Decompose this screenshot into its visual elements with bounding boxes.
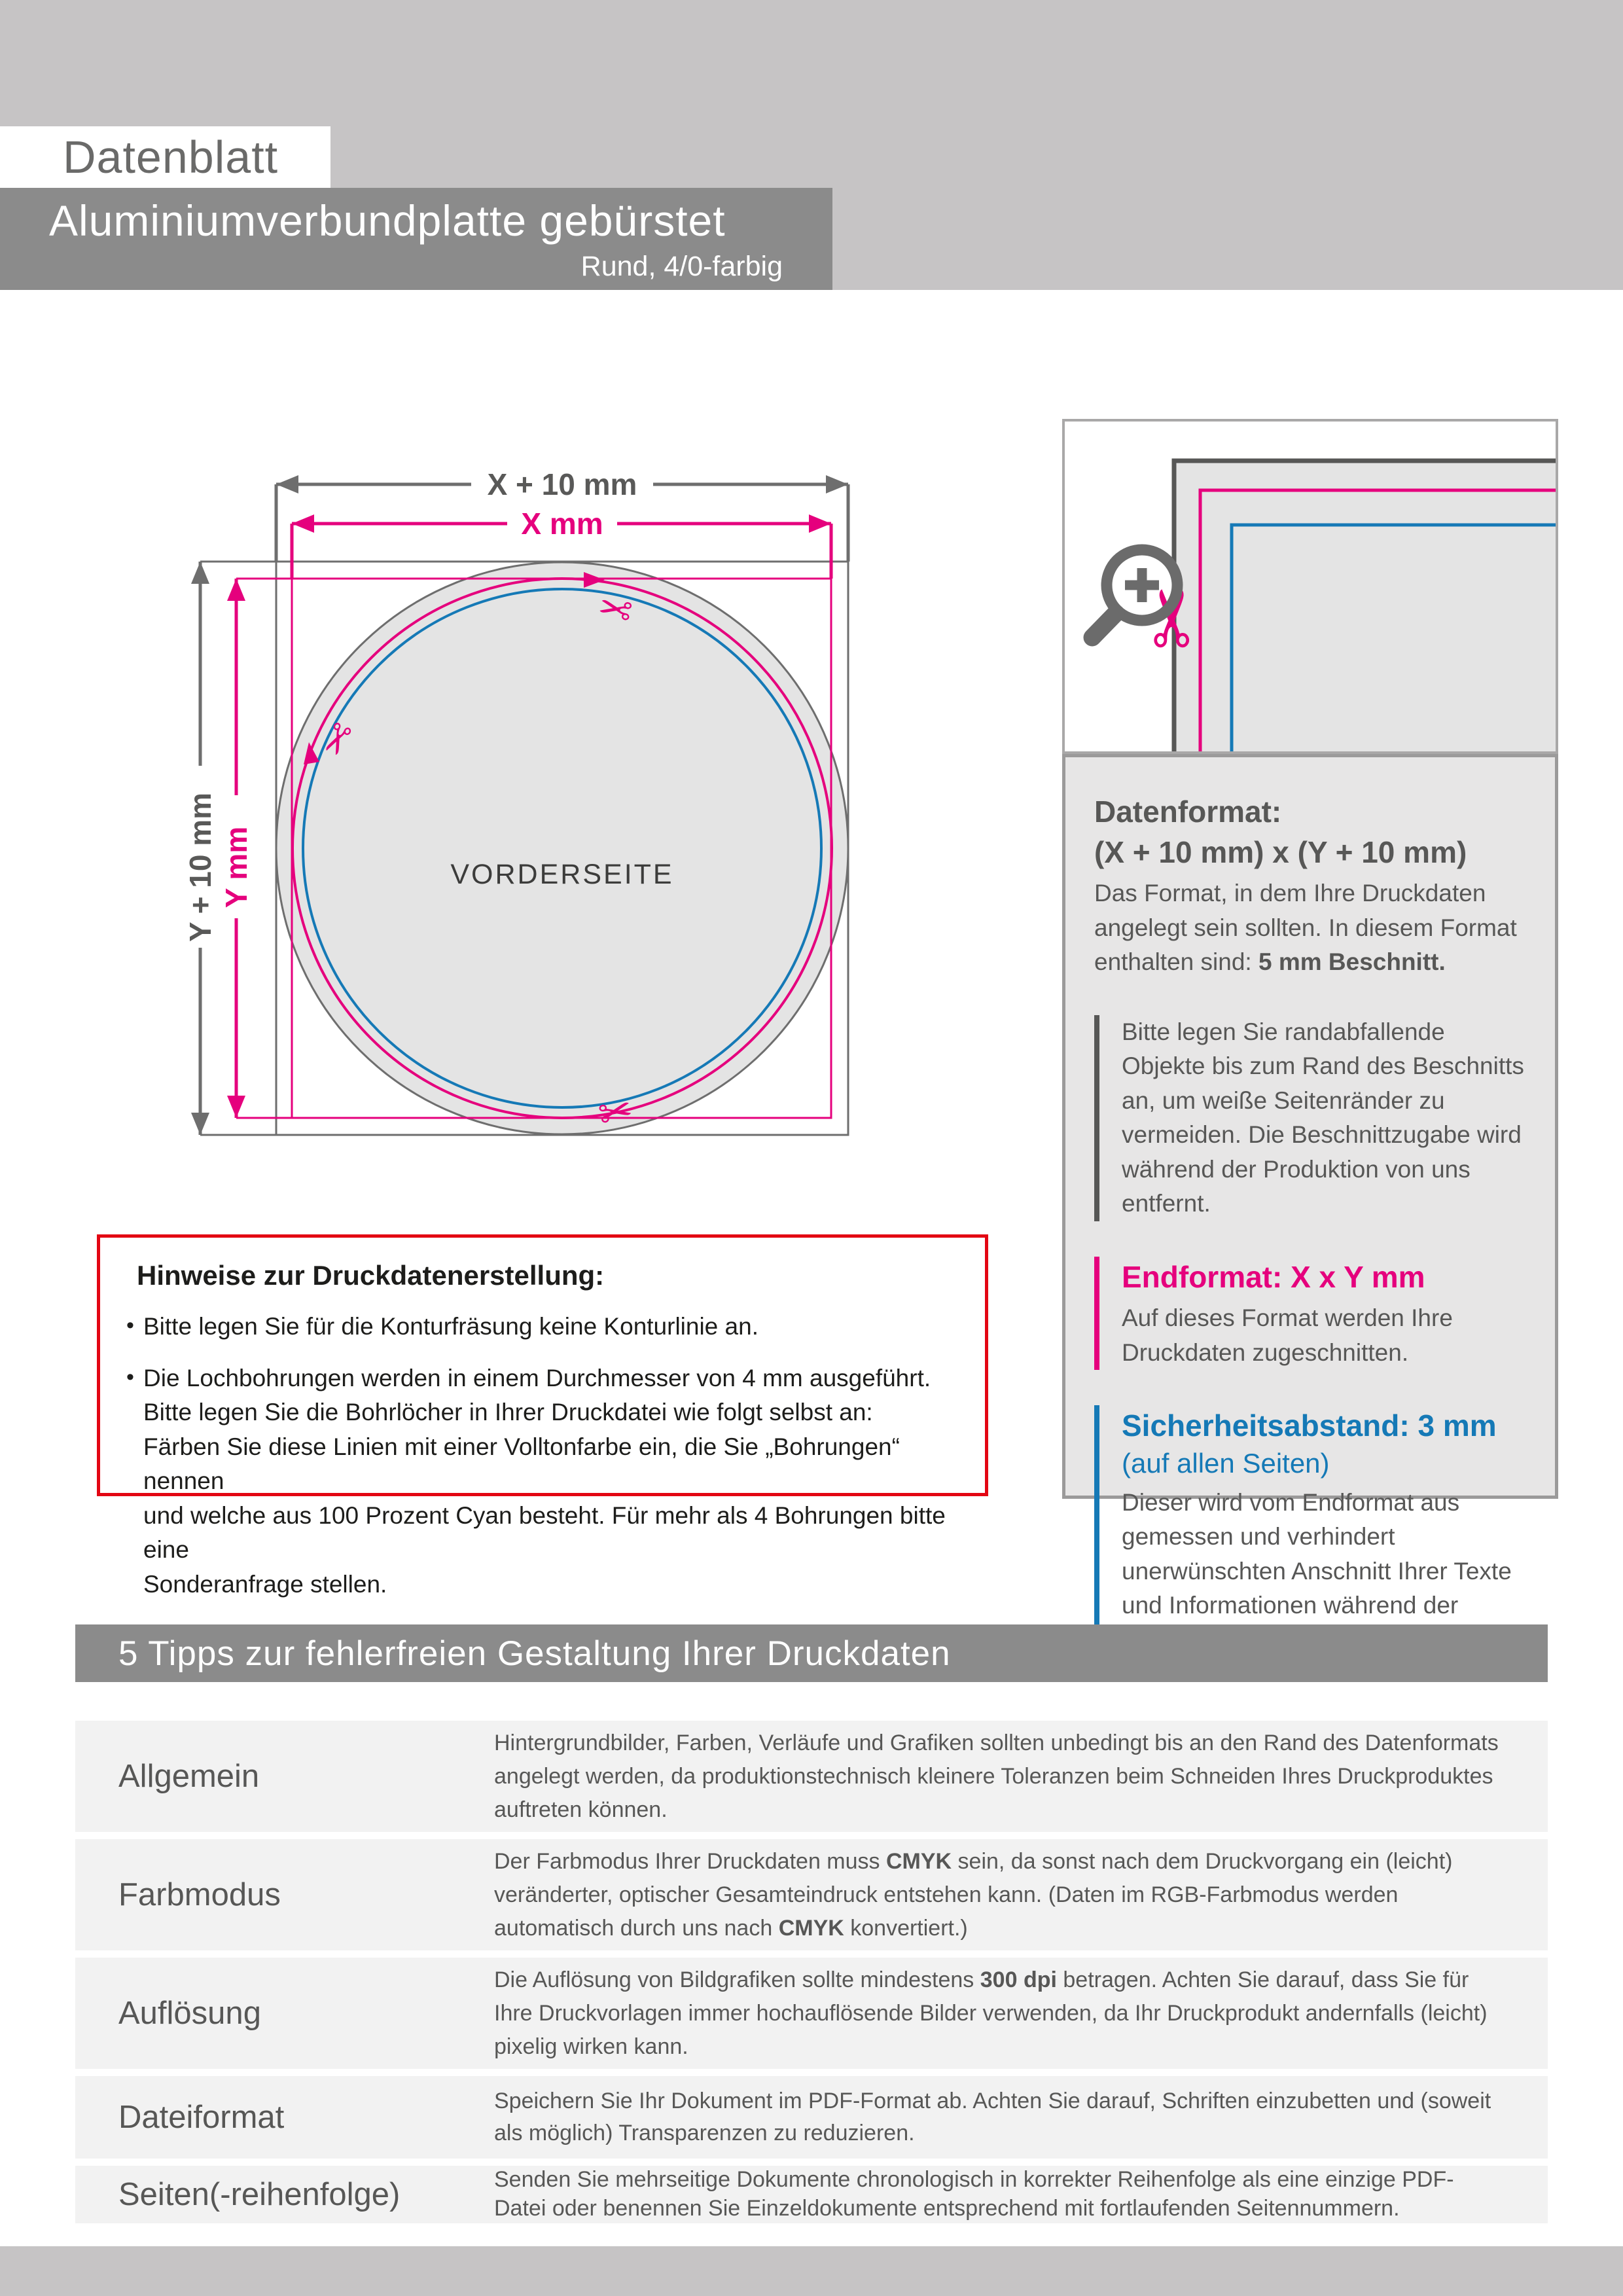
tip-text: Speichern Sie Ihr Dokument im PDF-Format… [494, 2089, 1491, 2145]
tip-description: Die Auflösung von Bildgrafiken sollte mi… [494, 1964, 1548, 2064]
datasheet-page: Datenblatt Aluminiumverbundplatte gebürs… [0, 0, 1623, 2296]
corner-zoom-detail-box: ✂ [1062, 419, 1558, 754]
dim-y-inner-label: Y mm [219, 827, 253, 908]
corner-zoom-illustration: ✂ [1065, 422, 1556, 751]
tip-text: Hintergrundbilder, Farben, Verläufe und … [494, 1731, 1499, 1822]
notes-title: Hinweise zur Druckdatenerstellung: [137, 1260, 985, 1291]
arrow-right-icon [809, 514, 831, 533]
arrow-left-icon [292, 514, 314, 533]
datenblatt-label-box: Datenblatt [0, 126, 330, 188]
tip-row-dateiformat: Dateiformat Speichern Sie Ihr Dokument i… [75, 2076, 1548, 2159]
product-subtitle: Rund, 4/0-farbig [581, 251, 783, 283]
tip-row-allgemein: Allgemein Hintergrundbilder, Farben, Ver… [75, 1721, 1548, 1832]
tip-text: Senden Sie mehrseitige Dokumente chronol… [494, 2167, 1454, 2221]
tip-label: Allgemein [75, 1758, 494, 1795]
product-title: Aluminiumverbundplatte gebürstet [49, 196, 726, 245]
tip-description: Der Farbmodus Ihrer Druckdaten muss CMYK… [494, 1845, 1548, 1945]
tip-bold-text: 300 dpi [980, 1967, 1057, 1992]
tip-row-seitenreihenfolge: Seiten(-reihenfolge) Senden Sie mehrseit… [75, 2166, 1548, 2223]
notes-bullet: Bitte legen Sie für die Konturfräsung ke… [126, 1310, 985, 1344]
tip-description: Speichern Sie Ihr Dokument im PDF-Format… [494, 2085, 1548, 2150]
dataformat-section: Datenformat: (X + 10 mm) x (Y + 10 mm) D… [1094, 791, 1529, 980]
tip-row-aufloesung: Auflösung Die Auflösung von Bildgrafiken… [75, 1958, 1548, 2069]
arrow-up-icon [191, 562, 209, 584]
format-diagram: X + 10 mm X mm Y + 10 mm Y mm ✂ ✂ ✂ VORD… [157, 452, 890, 1185]
dim-x-outer-label: X + 10 mm [488, 467, 637, 501]
front-side-label: VORDERSEITE [450, 859, 673, 890]
tip-row-farbmodus: Farbmodus Der Farbmodus Ihrer Druckdaten… [75, 1839, 1548, 1950]
endformat-title: Endformat: X x Y mm [1122, 1257, 1529, 1297]
endformat-description: Auf dieses Format werden Ihre Druckdaten… [1122, 1301, 1529, 1370]
tip-label: Seiten(-reihenfolge) [75, 2176, 494, 2213]
tip-text: Die Auflösung von Bildgrafiken sollte mi… [494, 1967, 980, 1992]
plate-circle [276, 562, 848, 1134]
tip-text: konvertiert.) [844, 1916, 968, 1941]
tip-description: Senden Sie mehrseitige Dokumente chronol… [494, 2166, 1548, 2223]
dim-x-inner-label: X mm [521, 507, 603, 541]
safety-title: Sicherheitsabstand: 3 mm [1122, 1405, 1529, 1446]
dataformat-bleed-bold: 5 mm Beschnitt. [1258, 948, 1446, 975]
arrow-left-icon [276, 475, 298, 493]
datenblatt-label: Datenblatt [63, 131, 278, 183]
tip-label: Farbmodus [75, 1876, 494, 1913]
arrow-up-icon [227, 579, 245, 601]
dataformat-value: (X + 10 mm) x (Y + 10 mm) [1094, 832, 1529, 872]
safety-section: Sicherheitsabstand: 3 mm (auf allen Seit… [1094, 1405, 1529, 1657]
dim-y-outer-label: Y + 10 mm [183, 793, 217, 942]
arrow-down-icon [227, 1096, 245, 1118]
safety-subtitle: (auf allen Seiten) [1122, 1446, 1529, 1482]
bottom-gray-band [0, 2246, 1623, 2296]
tip-bold-text: CMYK [886, 1849, 952, 1874]
arrow-right-icon [826, 475, 848, 493]
tips-banner-title: 5 Tipps zur fehlerfreien Gestaltung Ihre… [118, 1634, 951, 1674]
dataformat-description: Das Format, in dem Ihre Druckdaten angel… [1094, 876, 1529, 980]
print-data-notes-box: Hinweise zur Druckdatenerstellung: Bitte… [97, 1234, 988, 1496]
bleed-note-text: Bitte legen Sie randabfallende Objekte b… [1122, 1015, 1529, 1221]
dataformat-title: Datenformat: [1094, 791, 1529, 832]
tip-label: Auflösung [75, 1995, 494, 2032]
product-title-banner: Aluminiumverbundplatte gebürstet Rund, 4… [0, 188, 832, 290]
tips-banner: 5 Tipps zur fehlerfreien Gestaltung Ihre… [75, 1624, 1548, 1682]
endformat-section: Endformat: X x Y mm Auf dieses Format we… [1094, 1257, 1529, 1370]
notes-bullet: Die Lochbohrungen werden in einem Durchm… [126, 1361, 985, 1602]
tip-label: Dateiformat [75, 2099, 494, 2136]
bleed-note-section: Bitte legen Sie randabfallende Objekte b… [1094, 1015, 1529, 1221]
tip-description: Hintergrundbilder, Farben, Verläufe und … [494, 1727, 1548, 1827]
notes-list: Bitte legen Sie für die Konturfräsung ke… [126, 1310, 985, 1602]
arrow-down-icon [191, 1113, 209, 1135]
tip-text: Der Farbmodus Ihrer Druckdaten muss [494, 1849, 886, 1874]
tip-bold-text: CMYK [779, 1916, 844, 1941]
format-info-panel: Datenformat: (X + 10 mm) x (Y + 10 mm) D… [1062, 754, 1558, 1499]
